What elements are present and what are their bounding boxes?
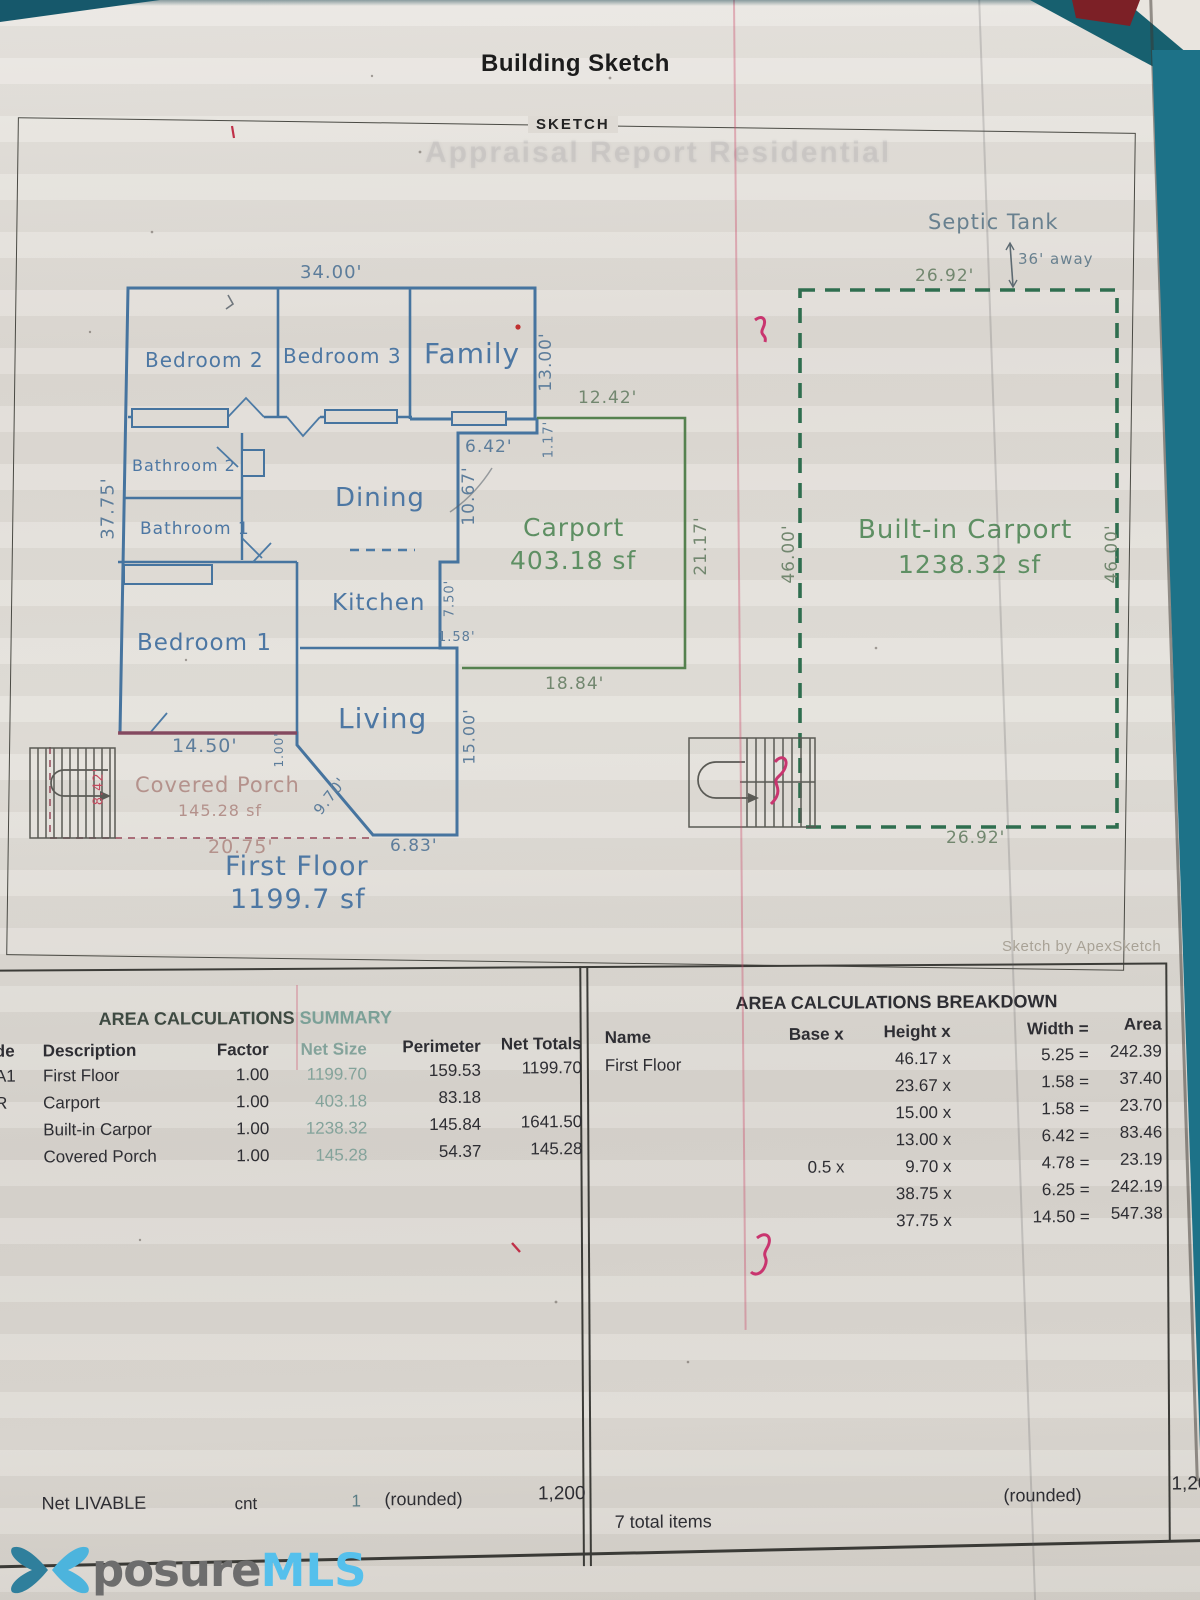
breakdown-title: AREA CALCULATIONS BREAKDOWN	[646, 991, 1146, 1015]
cell-code: R	[0, 1094, 7, 1114]
breakdown-rounded: (rounded)	[1003, 1485, 1081, 1506]
cell-code: A1	[0, 1067, 16, 1087]
net-livable-rounded: (rounded)	[384, 1489, 462, 1510]
net-livable-label: Net LIVABLE	[41, 1493, 146, 1515]
summary-title-main: AREA CALCULATIONS	[99, 1008, 295, 1029]
cell-area: 23.19	[1042, 1150, 1162, 1171]
cell-height: 13.00 x	[851, 1130, 951, 1151]
summary-header-perimeter: Perimeter	[389, 1037, 481, 1058]
summary-header-description: Description	[43, 1041, 137, 1062]
cell-perimeter: 145.84	[389, 1115, 481, 1136]
summary-header-net-size: Net Size	[287, 1039, 367, 1059]
summary-title-accent: SUMMARY	[300, 1007, 392, 1028]
cell-height: 9.70 x	[851, 1157, 951, 1178]
cell-height: 38.75 x	[852, 1184, 952, 1205]
cell-net-size: 403.18	[287, 1091, 367, 1111]
cell-factor: 1.00	[209, 1065, 269, 1085]
cell-net-totals: 1199.70	[472, 1058, 582, 1079]
breakdown-header-base: Base x	[774, 1025, 844, 1045]
cell-perimeter: 54.37	[389, 1142, 481, 1163]
summary-header-code: de	[0, 1042, 15, 1062]
cell-area: 23.70	[1042, 1096, 1162, 1117]
cell-factor: 1.00	[209, 1119, 269, 1139]
cell-height: 37.75 x	[852, 1211, 952, 1232]
breakdown-header-name: Name	[605, 1028, 651, 1048]
breakdown-total-items: 7 total items	[615, 1511, 712, 1533]
cell-net-totals	[472, 1085, 582, 1086]
logo-text-mls: MLS	[261, 1544, 367, 1597]
cell-description: First Floor	[43, 1066, 120, 1086]
cell-factor: 1.00	[209, 1146, 269, 1166]
cell-height: 46.17 x	[851, 1049, 951, 1070]
net-livable-count: 1	[351, 1491, 361, 1511]
cell-area: 83.46	[1042, 1123, 1162, 1144]
cell-area: 547.38	[1043, 1204, 1163, 1225]
photo-top-edge	[0, 0, 1040, 6]
summary-title: AREA CALCULATIONS SUMMARY	[99, 1007, 392, 1030]
cell-net-size: 145.28	[287, 1145, 367, 1165]
breakdown-header-height: Height x	[851, 1022, 951, 1043]
net-livable-total: 1,200	[499, 1483, 585, 1506]
cell-net-size: 1199.70	[287, 1064, 367, 1084]
cell-area: 37.40	[1042, 1069, 1162, 1090]
net-livable-cnt: cnt	[234, 1494, 257, 1514]
xposure-logo-icon	[6, 1542, 92, 1598]
cell-area: 242.19	[1043, 1177, 1163, 1198]
cell-net-size: 1238.32	[287, 1118, 367, 1138]
area-calculations-section: AREA CALCULATIONS SUMMARY de Description…	[0, 0, 1200, 1600]
cell-base: 0.5 x	[774, 1158, 844, 1178]
cell-net-totals: 145.28	[472, 1139, 582, 1160]
cell-height: 15.00 x	[851, 1103, 951, 1124]
logo-text-posure: posure	[92, 1544, 261, 1597]
cell-description: Built-in Carpor	[43, 1120, 152, 1141]
cell-perimeter: 83.18	[389, 1088, 481, 1109]
summary-header-net-totals: Net Totals	[472, 1034, 582, 1055]
cell-description: Carport	[43, 1093, 100, 1113]
cell-factor: 1.00	[209, 1092, 269, 1112]
cell-net-totals: 1641.50	[472, 1112, 582, 1133]
cell-height: 23.67 x	[851, 1076, 951, 1097]
scanned-document-photo: Building Sketch Appraisal Report Residen…	[0, 0, 1200, 1600]
xposure-mls-logo: posureMLS	[6, 1540, 367, 1600]
fold-crease-pink-short	[296, 985, 298, 1070]
cell-area: 242.39	[1042, 1042, 1162, 1063]
cell-perimeter: 159.53	[389, 1061, 481, 1082]
breakdown-header-area: Area	[1042, 1015, 1162, 1036]
cell-description: Covered Porch	[43, 1147, 157, 1168]
breakdown-name-first-floor: First Floor	[605, 1055, 682, 1075]
summary-header-factor: Factor	[209, 1040, 269, 1060]
